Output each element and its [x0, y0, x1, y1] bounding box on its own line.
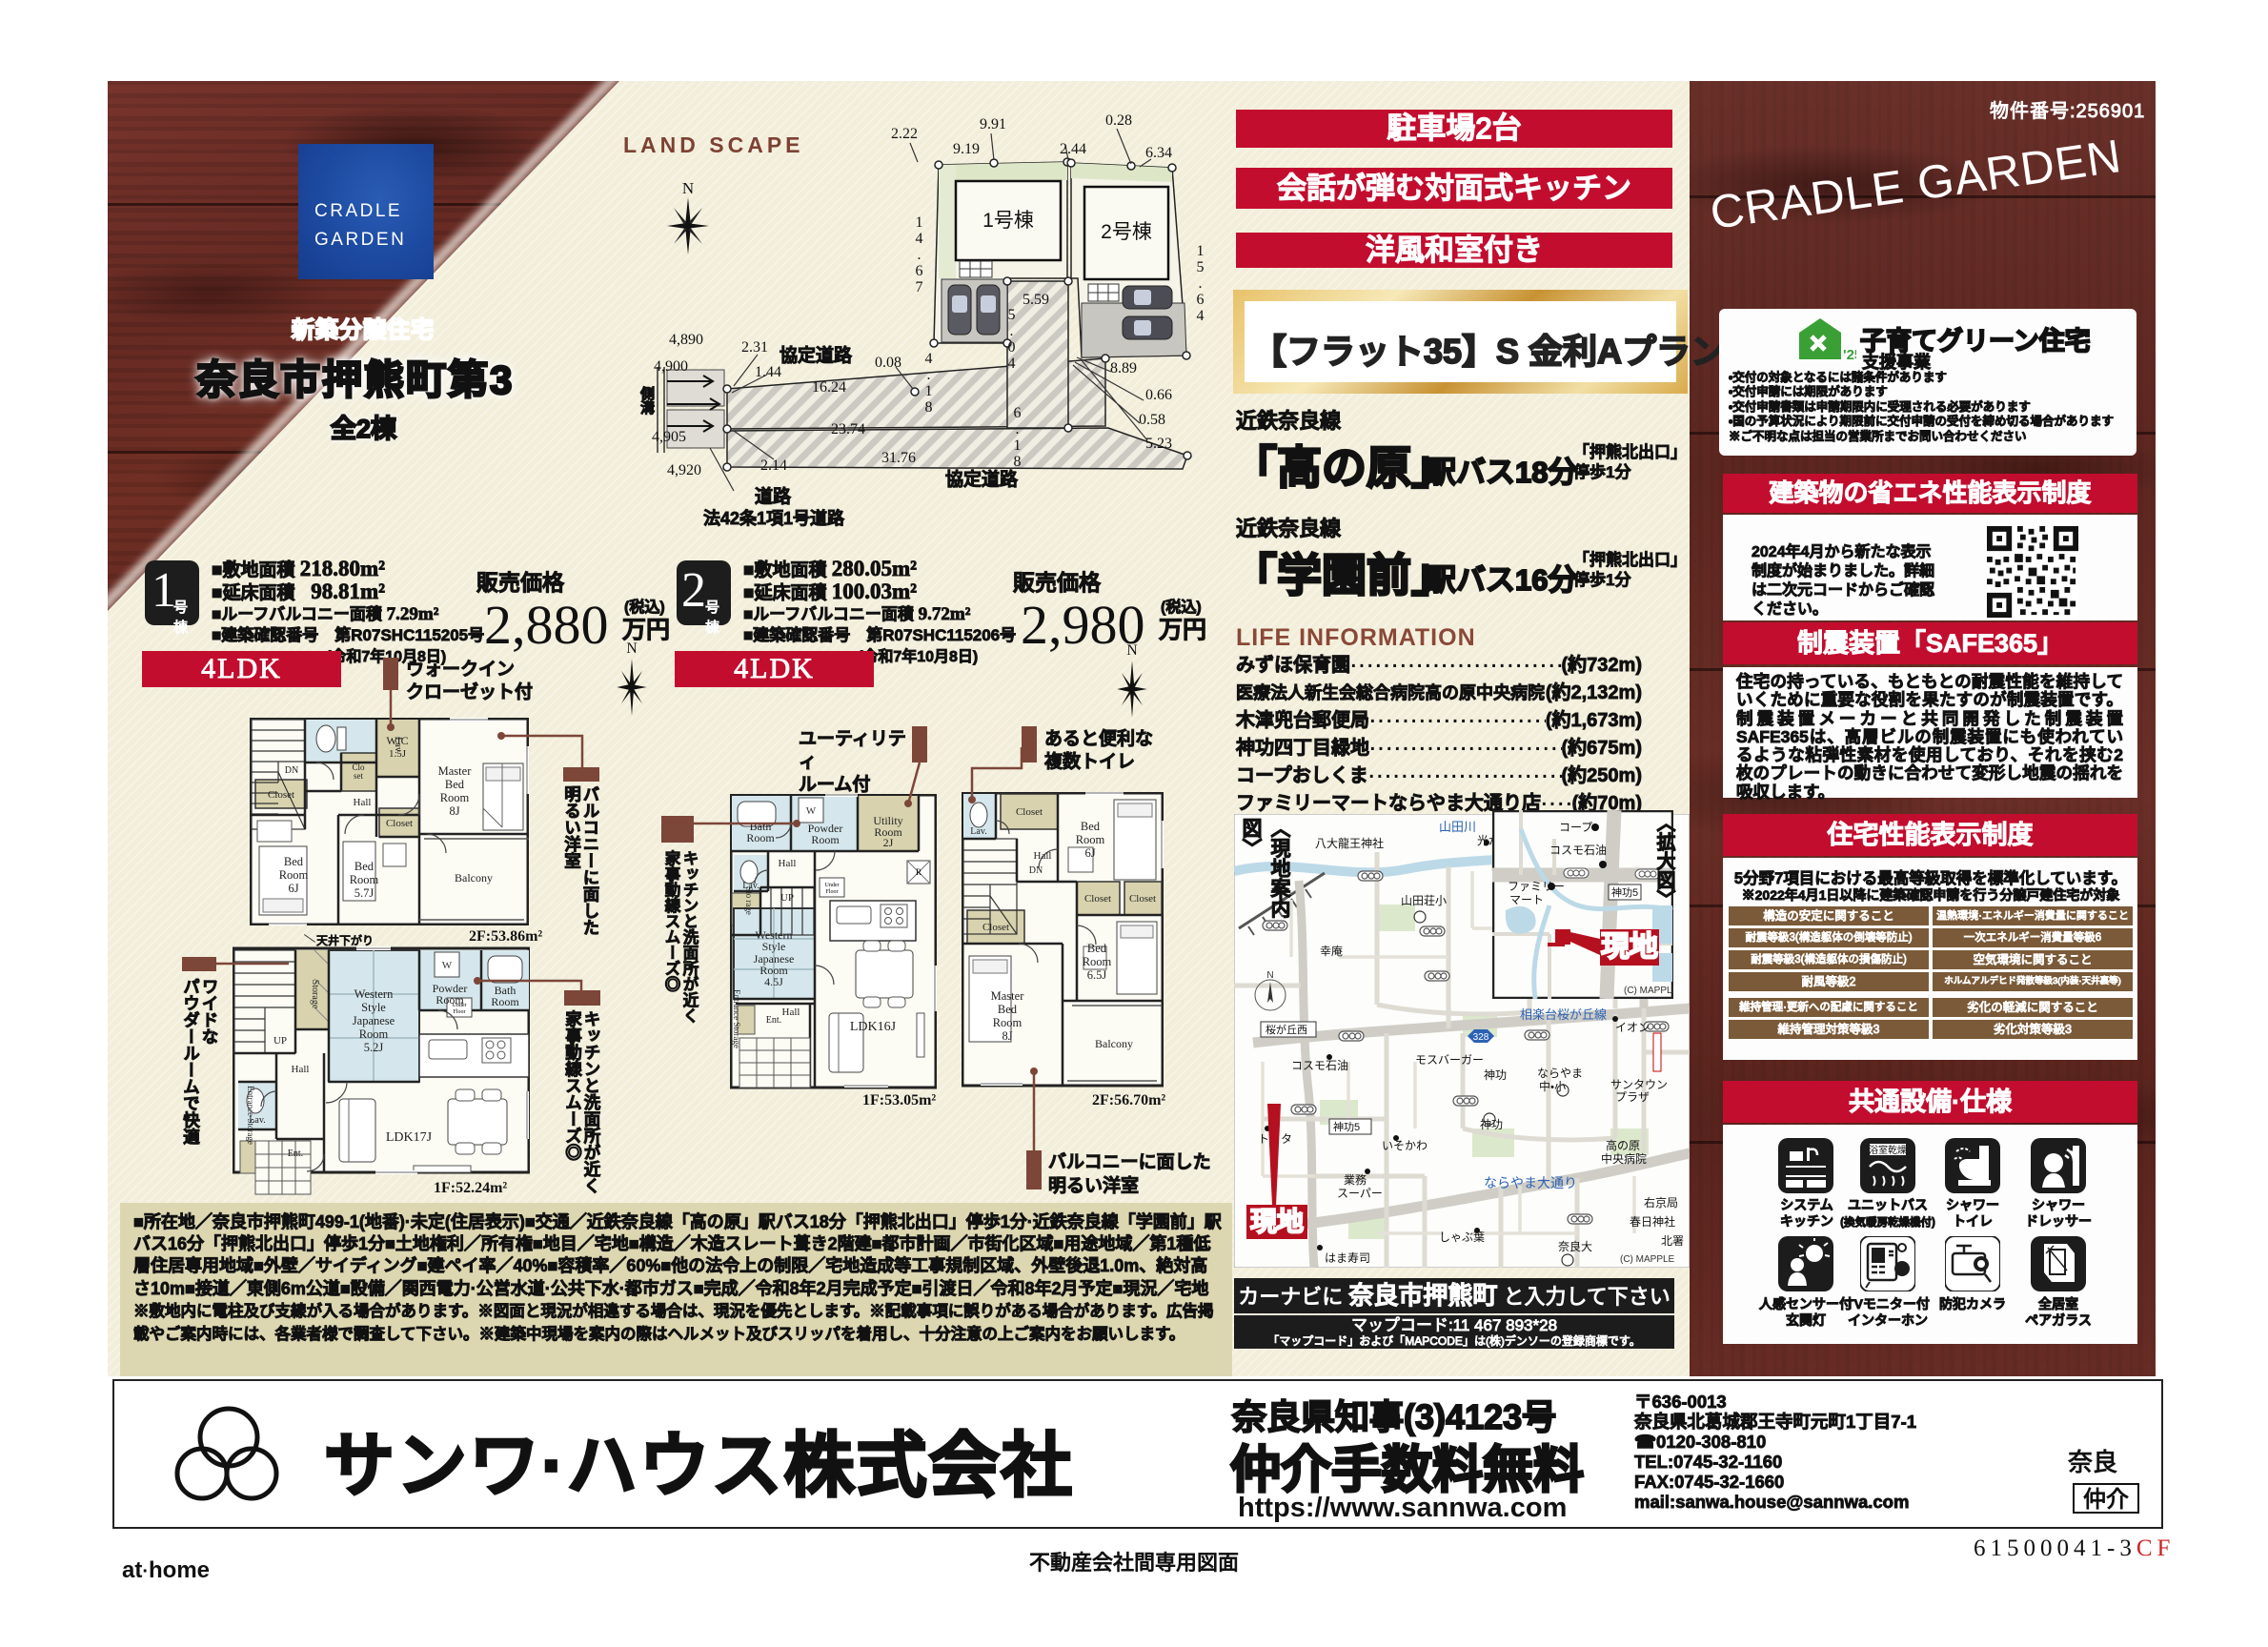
svg-text:4.5J: 4.5J — [764, 975, 783, 988]
svg-text:Bed: Bed — [1087, 942, 1107, 955]
svg-text:山田川: 山田川 — [1439, 820, 1476, 834]
svg-text:Hall: Hall — [354, 797, 372, 808]
svg-text:Bed: Bed — [284, 855, 304, 868]
svg-text:Bed: Bed — [445, 778, 465, 791]
svg-text:DN: DN — [1029, 865, 1043, 876]
svg-text:Floor: Floor — [453, 1009, 465, 1015]
svg-text:Style: Style — [762, 940, 786, 953]
svg-text:Floor: Floor — [825, 889, 838, 895]
svg-text:Entrance Storage: Entrance Storage — [246, 1086, 255, 1145]
svg-text:5.2J: 5.2J — [364, 1041, 384, 1054]
svg-text:相楽台桜が丘線: 相楽台桜が丘線 — [1520, 1007, 1607, 1022]
svg-text:ならやま: ならやま — [1537, 1067, 1583, 1080]
svg-text:はま寿司: はま寿司 — [1325, 1251, 1370, 1265]
svg-text:ならやま大通り: ならやま大通り — [1484, 1175, 1577, 1190]
svg-text:Balcony: Balcony — [455, 871, 493, 884]
svg-text:Closet: Closet — [386, 818, 413, 829]
svg-text:マート: マート — [1509, 893, 1544, 906]
svg-text:Closet: Closet — [982, 922, 1009, 933]
svg-text:N: N — [1266, 970, 1273, 981]
svg-text:Western: Western — [354, 987, 394, 1001]
svg-text:桜が丘西: 桜が丘西 — [1266, 1023, 1307, 1036]
svg-text:set: set — [354, 771, 363, 781]
svg-text:LDK16J: LDK16J — [850, 1020, 897, 1034]
svg-text:神功5: 神功5 — [1611, 885, 1638, 899]
svg-text:Entrance Storage: Entrance Storage — [732, 989, 741, 1048]
svg-text:浴室乾燥: 浴室乾燥 — [1869, 1144, 1907, 1156]
svg-text:Room: Room — [1083, 955, 1112, 968]
svg-text:八大龍王神社: 八大龍王神社 — [1315, 836, 1384, 850]
svg-text:イオン: イオン — [1615, 1021, 1650, 1034]
svg-text:幸庵: 幸庵 — [1320, 945, 1343, 958]
svg-text:N: N — [626, 640, 637, 657]
svg-text:中・小: 中・小 — [1539, 1079, 1566, 1093]
svg-text:業務: 業務 — [1344, 1173, 1367, 1187]
svg-text:Bed: Bed — [1081, 820, 1101, 833]
svg-text:Bed: Bed — [354, 860, 375, 873]
svg-text:Hall: Hall — [292, 1064, 310, 1075]
svg-text:W: W — [806, 805, 817, 817]
svg-text:8J: 8J — [1002, 1029, 1012, 1043]
svg-text:中央病院: 中央病院 — [1601, 1151, 1647, 1166]
svg-text:Room: Room — [350, 873, 379, 886]
svg-text:モスバーガー: モスバーガー — [1415, 1053, 1484, 1067]
svg-text:Room: Room — [491, 995, 519, 1008]
svg-text:'25: '25 — [1843, 347, 1856, 363]
svg-text:右京局: 右京局 — [1644, 1195, 1678, 1210]
svg-text:Closet: Closet — [268, 789, 294, 801]
svg-text:Room: Room — [746, 831, 775, 844]
svg-text:Balcony: Balcony — [1095, 1037, 1133, 1050]
svg-text:(C) MAPPLE: (C) MAPPLE — [1624, 986, 1673, 996]
svg-text:いそかわ: いそかわ — [1382, 1139, 1428, 1152]
svg-text:6J: 6J — [288, 882, 298, 895]
svg-text:(C) MAPPLE: (C) MAPPLE — [1620, 1254, 1675, 1265]
svg-text:Room: Room — [359, 1027, 389, 1041]
svg-text:神功: 神功 — [1484, 1067, 1507, 1082]
svg-text:スーパー: スーパー — [1337, 1187, 1383, 1200]
svg-text:Ent.: Ent. — [766, 1015, 781, 1026]
svg-text:北署: 北署 — [1661, 1234, 1684, 1248]
svg-text:奈良大: 奈良大 — [1558, 1239, 1592, 1253]
svg-text:Master: Master — [991, 989, 1025, 1003]
svg-text:Closet: Closet — [1084, 893, 1111, 905]
svg-text:Sto rage: Sto rage — [744, 886, 754, 915]
svg-text:Master: Master — [438, 764, 473, 778]
svg-text:UP: UP — [273, 1035, 287, 1047]
svg-text:Room: Room — [811, 833, 840, 846]
svg-text:Room: Room — [440, 791, 470, 804]
svg-text:1.5J: 1.5J — [389, 748, 407, 760]
svg-text:5.7J: 5.7J — [354, 886, 375, 900]
svg-text:高の原: 高の原 — [1606, 1139, 1640, 1152]
svg-text:コスモ石油: コスモ石油 — [1291, 1059, 1348, 1072]
svg-text:Hall: Hall — [1034, 850, 1052, 862]
svg-text:サンタウン: サンタウン — [1610, 1078, 1668, 1091]
svg-text:春日神社: 春日神社 — [1630, 1214, 1675, 1229]
svg-text:UP: UP — [780, 892, 794, 904]
svg-text:Room: Room — [993, 1016, 1023, 1029]
svg-text:8J: 8J — [449, 804, 459, 818]
svg-text:Under: Under — [825, 883, 840, 888]
svg-text:6J: 6J — [1084, 846, 1095, 860]
svg-text:Room: Room — [279, 868, 309, 882]
svg-text:山田荘小: 山田荘小 — [1401, 894, 1447, 907]
svg-text:Room: Room — [435, 993, 464, 1006]
svg-text:Closet: Closet — [1129, 893, 1156, 905]
svg-text:コスモ石油: コスモ石油 — [1549, 844, 1607, 857]
svg-text:神功5: 神功5 — [1333, 1120, 1360, 1133]
svg-text:Ent.: Ent. — [288, 1149, 303, 1159]
svg-text:DN: DN — [285, 765, 298, 776]
svg-text:R: R — [916, 867, 921, 877]
svg-text:Lav.: Lav. — [970, 826, 986, 837]
svg-text:Storage: Storage — [310, 980, 320, 1009]
svg-text:Style: Style — [361, 1001, 386, 1014]
svg-text:N: N — [1126, 642, 1137, 659]
svg-text:プラザ: プラザ — [1615, 1090, 1650, 1104]
svg-text:328: 328 — [1473, 1032, 1489, 1043]
svg-text:Japanese: Japanese — [353, 1014, 395, 1027]
svg-text:2J: 2J — [883, 836, 894, 849]
svg-text:WIC: WIC — [386, 734, 408, 747]
svg-text:Hall: Hall — [779, 858, 797, 869]
svg-text:6.5J: 6.5J — [1087, 968, 1107, 982]
svg-text:Bed: Bed — [998, 1003, 1018, 1016]
svg-text:Closet: Closet — [1016, 806, 1043, 818]
svg-text:ファミリー: ファミリー — [1508, 880, 1565, 893]
svg-text:コープ: コープ — [1559, 821, 1592, 834]
svg-text:Hall: Hall — [782, 1006, 800, 1018]
svg-text:W: W — [442, 960, 453, 971]
svg-text:Room: Room — [1076, 833, 1105, 846]
svg-text:LDK17J: LDK17J — [386, 1130, 433, 1145]
